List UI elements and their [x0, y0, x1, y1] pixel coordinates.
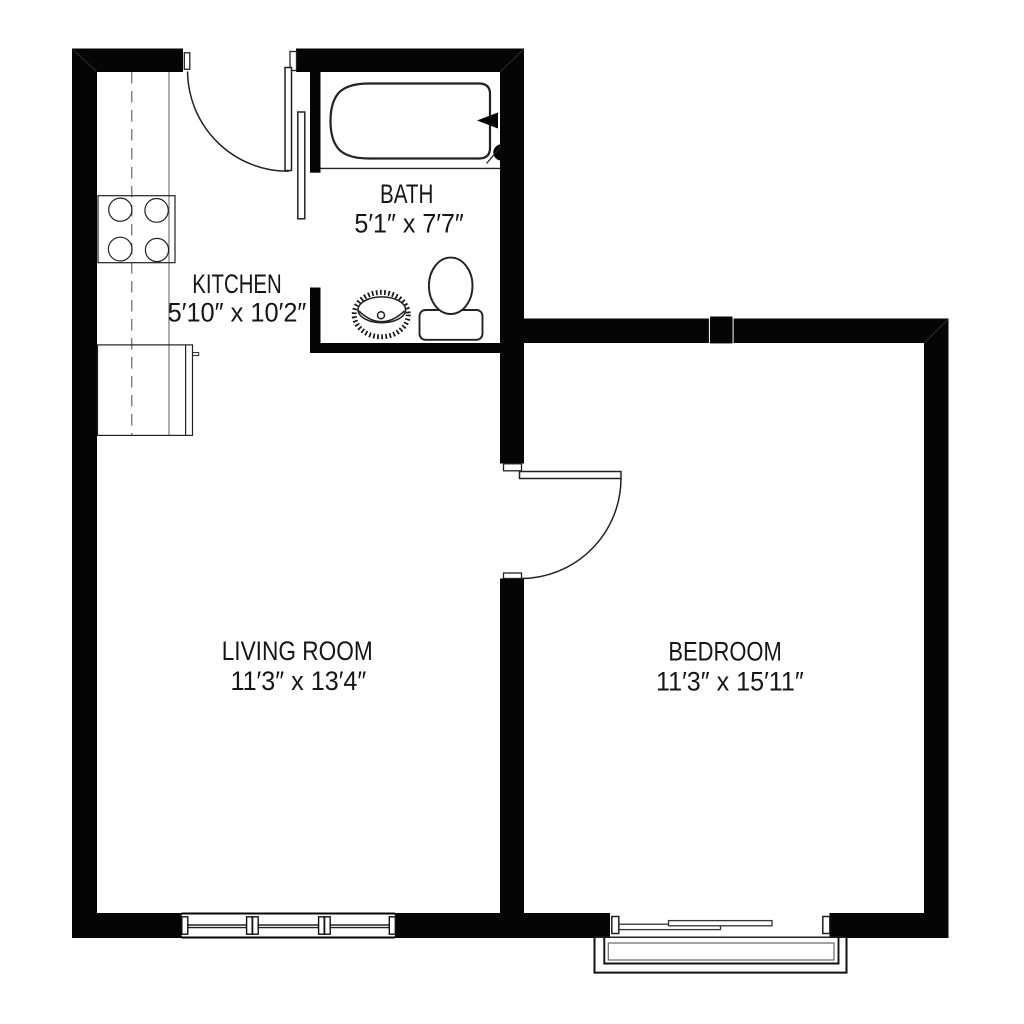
svg-text:BEDROOM: BEDROOM — [668, 637, 781, 667]
svg-text:11′3″ x 15′11″: 11′3″ x 15′11″ — [656, 667, 804, 697]
svg-text:BATH: BATH — [380, 179, 434, 209]
svg-text:5′10″ x 10′2″: 5′10″ x 10′2″ — [168, 297, 307, 327]
svg-text:5′1″ x 7′7″: 5′1″ x 7′7″ — [354, 209, 463, 239]
svg-text:KITCHEN: KITCHEN — [192, 269, 282, 299]
svg-text:11′3″ x 13′4″: 11′3″ x 13′4″ — [230, 666, 366, 696]
svg-text:LIVING ROOM: LIVING ROOM — [222, 636, 373, 666]
